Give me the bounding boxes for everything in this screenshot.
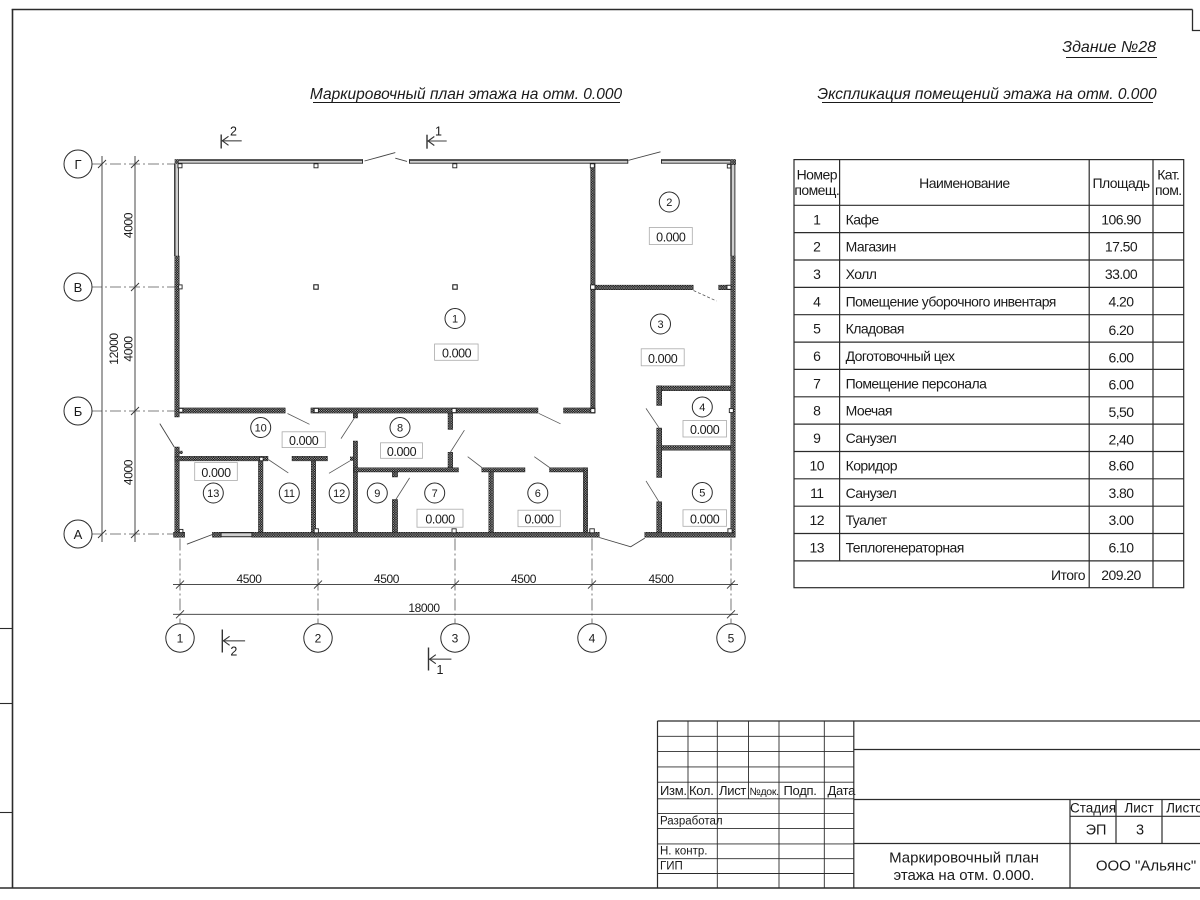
svg-text:Изм.: Изм.	[660, 783, 687, 798]
svg-text:4000: 4000	[122, 336, 136, 362]
svg-text:11: 11	[284, 488, 295, 500]
svg-text:0.000: 0.000	[387, 445, 417, 459]
svg-text:0.000: 0.000	[524, 513, 554, 527]
svg-text:4000: 4000	[122, 459, 136, 485]
svg-text:Стадия: Стадия	[1070, 801, 1116, 816]
svg-text:3.00: 3.00	[1108, 512, 1134, 528]
svg-text:8.60: 8.60	[1108, 457, 1134, 473]
svg-text:4: 4	[589, 631, 596, 645]
svg-text:0.000: 0.000	[648, 352, 678, 366]
svg-text:4.20: 4.20	[1108, 293, 1134, 309]
svg-text:4000: 4000	[122, 212, 136, 238]
svg-text:9: 9	[813, 430, 821, 446]
svg-text:3: 3	[657, 319, 663, 331]
svg-text:5,50: 5,50	[1108, 404, 1134, 420]
svg-text:0.000: 0.000	[656, 231, 686, 245]
svg-text:Кат.: Кат.	[1157, 167, 1179, 183]
svg-text:2: 2	[230, 125, 237, 139]
svg-text:0.000: 0.000	[201, 466, 231, 480]
svg-text:0.000: 0.000	[690, 423, 720, 437]
svg-text:Помещение уборочного инвентаря: Помещение уборочного инвентаря	[846, 293, 1056, 309]
svg-text:Здание №28: Здание №28	[1062, 39, 1156, 56]
svg-text:1: 1	[435, 125, 442, 139]
svg-text:6.20: 6.20	[1108, 322, 1134, 338]
svg-text:18000: 18000	[408, 601, 440, 615]
svg-text:Разработал: Разработал	[660, 816, 723, 828]
svg-text:6.10: 6.10	[1108, 540, 1134, 556]
svg-text:ЭП: ЭП	[1086, 823, 1107, 839]
svg-text:Подп.: Подп.	[784, 783, 817, 798]
svg-text:1: 1	[437, 663, 444, 677]
svg-text:1: 1	[452, 313, 458, 325]
svg-text:4500: 4500	[374, 572, 400, 586]
svg-text:6: 6	[535, 488, 541, 500]
svg-text:ГИП: ГИП	[660, 861, 683, 873]
svg-text:Дата: Дата	[828, 783, 857, 798]
svg-text:Кафе: Кафе	[846, 211, 880, 227]
svg-text:Лист: Лист	[719, 783, 746, 798]
svg-text:Н. контр.: Н. контр.	[660, 846, 707, 858]
svg-text:3: 3	[813, 266, 821, 282]
svg-text:5: 5	[813, 321, 821, 337]
svg-text:3: 3	[452, 631, 459, 645]
svg-text:Туалет: Туалет	[846, 512, 888, 528]
svg-text:Площадь: Площадь	[1092, 175, 1149, 191]
svg-text:Номер: Номер	[797, 167, 838, 183]
svg-text:13: 13	[810, 540, 825, 556]
svg-text:Санузел: Санузел	[846, 485, 897, 501]
svg-text:10: 10	[255, 422, 267, 434]
svg-text:12: 12	[333, 488, 345, 500]
svg-text:209.20: 209.20	[1101, 567, 1141, 583]
svg-text:Маркировочный план этажа на от: Маркировочный план этажа на отм. 0.000	[310, 86, 623, 103]
svg-text:Лист: Лист	[1124, 801, 1153, 816]
svg-text:Маркировочный план: Маркировочный план	[889, 850, 1039, 867]
svg-text:6: 6	[813, 348, 821, 364]
svg-text:5: 5	[728, 631, 735, 645]
svg-text:6.00: 6.00	[1108, 349, 1134, 365]
svg-text:А: А	[74, 527, 83, 542]
svg-text:8: 8	[397, 422, 403, 434]
svg-text:3.80: 3.80	[1108, 485, 1134, 501]
svg-text:106.90: 106.90	[1101, 211, 1141, 227]
svg-text:этажа на отм. 0.000.: этажа на отм. 0.000.	[894, 867, 1035, 884]
svg-text:0.000: 0.000	[690, 512, 720, 526]
svg-text:Б: Б	[74, 404, 83, 419]
svg-text:0.000: 0.000	[442, 347, 472, 361]
svg-text:4: 4	[813, 293, 821, 309]
svg-text:Г: Г	[74, 157, 81, 172]
svg-text:2,40: 2,40	[1108, 431, 1134, 447]
svg-text:12000: 12000	[107, 333, 121, 365]
svg-text:Листов: Листов	[1166, 801, 1200, 816]
svg-text:Теплогенераторная: Теплогенераторная	[846, 540, 964, 556]
svg-text:7: 7	[813, 375, 821, 391]
svg-text:5: 5	[699, 487, 705, 499]
svg-text:6.00: 6.00	[1108, 377, 1134, 393]
svg-text:Санузел: Санузел	[846, 430, 897, 446]
svg-text:10: 10	[810, 457, 825, 473]
svg-text:12: 12	[810, 512, 825, 528]
svg-text:2: 2	[813, 239, 821, 255]
svg-text:13: 13	[207, 488, 219, 500]
svg-text:Итого: Итого	[1051, 567, 1086, 583]
svg-text:помещ.: помещ.	[794, 182, 839, 198]
svg-text:11: 11	[810, 485, 824, 501]
svg-text:3: 3	[1136, 823, 1144, 839]
svg-text:0.000: 0.000	[289, 434, 319, 448]
svg-text:Помещение персонала: Помещение персонала	[846, 375, 988, 391]
svg-text:Кол.: Кол.	[689, 783, 714, 798]
svg-text:8: 8	[813, 403, 821, 419]
svg-text:7: 7	[432, 488, 438, 500]
svg-text:2: 2	[666, 197, 672, 209]
svg-text:9: 9	[374, 488, 380, 500]
svg-text:4: 4	[699, 402, 705, 414]
svg-text:4500: 4500	[648, 572, 674, 586]
svg-text:Кладовая: Кладовая	[846, 321, 904, 337]
svg-text:33.00: 33.00	[1105, 266, 1138, 282]
svg-text:Экспликация помещений этажа на: Экспликация помещений этажа на отм. 0.00…	[817, 86, 1157, 103]
svg-text:Моечая: Моечая	[846, 403, 892, 419]
svg-text:1: 1	[177, 631, 184, 645]
svg-text:Наименование: Наименование	[919, 175, 1010, 191]
svg-text:17.50: 17.50	[1105, 239, 1138, 255]
svg-text:4500: 4500	[236, 572, 262, 586]
svg-text:В: В	[74, 280, 83, 295]
svg-text:ООО "Альянс": ООО "Альянс"	[1096, 858, 1196, 875]
svg-text:1: 1	[813, 211, 821, 227]
svg-text:Холл: Холл	[846, 266, 877, 282]
svg-text:0.000: 0.000	[425, 513, 455, 527]
svg-text:4500: 4500	[511, 572, 537, 586]
svg-text:2: 2	[230, 645, 237, 659]
svg-text:Магазин: Магазин	[846, 239, 896, 255]
svg-text:пом.: пом.	[1155, 182, 1182, 198]
svg-text:2: 2	[315, 631, 322, 645]
svg-text:№док.: №док.	[750, 786, 779, 798]
svg-text:Коридор: Коридор	[846, 457, 898, 473]
svg-text:Доготовочный цех: Доготовочный цех	[846, 348, 955, 364]
